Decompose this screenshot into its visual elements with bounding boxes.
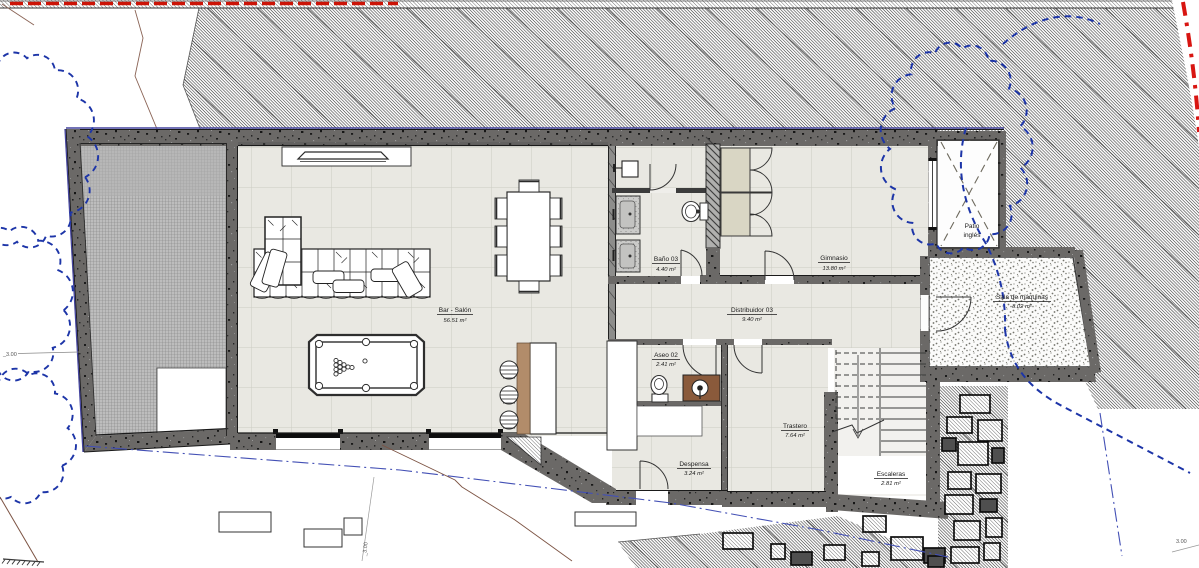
svg-text:56.51 m²: 56.51 m² <box>444 318 468 324</box>
svg-text:Sala de máquinas: Sala de máquinas <box>996 294 1049 301</box>
svg-text:2.81 m²: 2.81 m² <box>880 481 902 487</box>
svg-text:8.02 m²: 8.02 m² <box>1012 304 1033 310</box>
svg-text:Bar - Salón: Bar - Salón <box>439 307 472 314</box>
svg-text:9.40 m²: 9.40 m² <box>742 317 763 323</box>
svg-text:Escaleras: Escaleras <box>877 471 906 478</box>
svg-text:3.24 m²: 3.24 m² <box>684 471 705 477</box>
svg-text:Gimnasio: Gimnasio <box>820 255 848 262</box>
svg-text:Trastero: Trastero <box>783 423 807 430</box>
svg-text:13.80 m²: 13.80 m² <box>823 266 847 272</box>
svg-text:Aseo 02: Aseo 02 <box>654 352 678 359</box>
svg-text:3.00: 3.00 <box>1176 539 1187 545</box>
svg-text:Distribuidor 03: Distribuidor 03 <box>731 307 773 314</box>
svg-text:inglés: inglés <box>964 232 982 239</box>
svg-text:2.41 m²: 2.41 m² <box>655 362 677 368</box>
svg-text:_3.00: _3.00 <box>2 352 17 358</box>
svg-text:Baño 03: Baño 03 <box>654 256 679 263</box>
svg-text:Despensa: Despensa <box>679 461 709 468</box>
svg-text:4.40 m²: 4.40 m² <box>656 267 677 273</box>
svg-text:Patio: Patio <box>965 223 980 230</box>
svg-text:7.64 m²: 7.64 m² <box>785 433 806 439</box>
